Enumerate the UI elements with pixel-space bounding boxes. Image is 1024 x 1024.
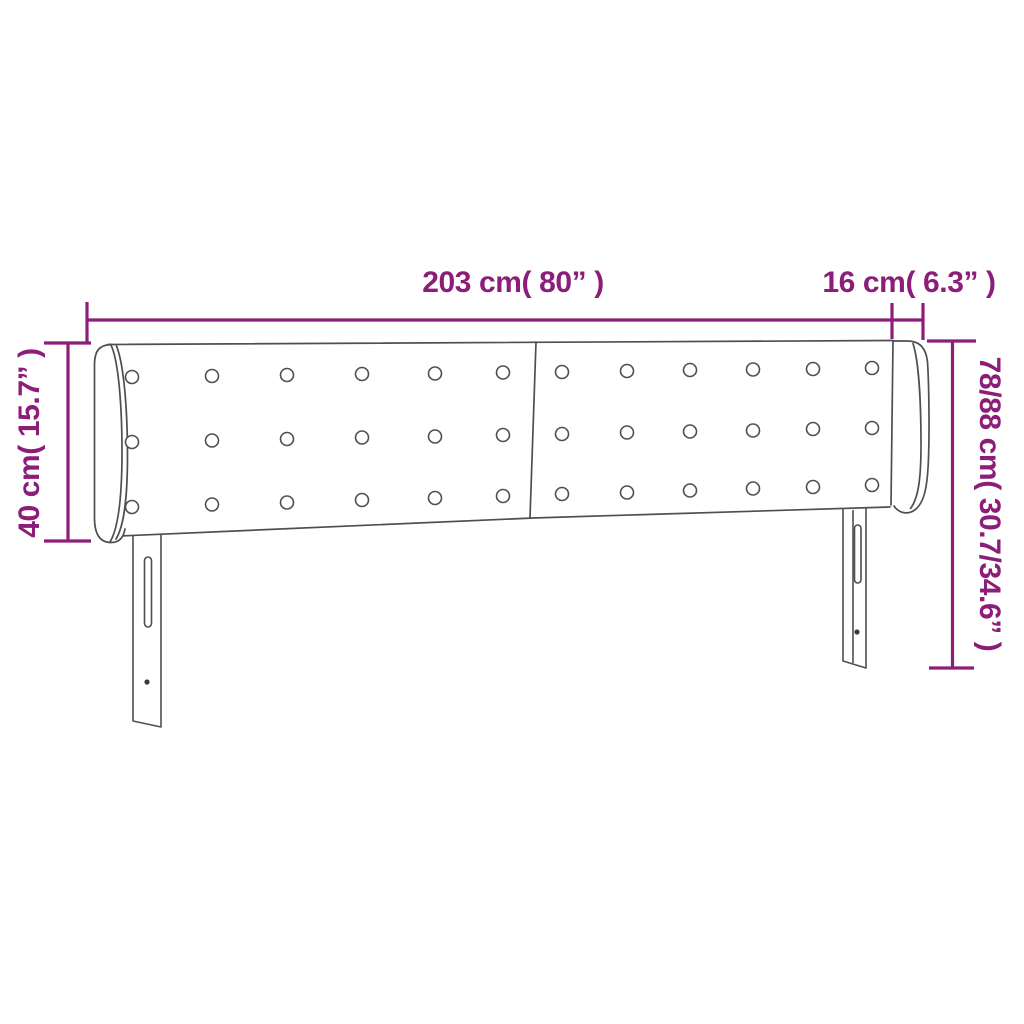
button	[747, 424, 760, 437]
wing-width-dimension-label: 16 cm( 6.3” )	[822, 266, 995, 300]
total-width-dimension-label: 203 cm( 80” )	[422, 266, 604, 300]
button	[356, 431, 369, 444]
left-leg-slot	[145, 557, 152, 627]
button	[356, 494, 369, 507]
button	[126, 501, 139, 514]
button	[621, 486, 634, 499]
diagram-canvas: 203 cm( 80” ) 16 cm( 6.3” ) 40 cm( 15.7”…	[0, 0, 1024, 1024]
button	[497, 366, 510, 379]
button	[281, 369, 294, 382]
button	[684, 484, 697, 497]
button	[866, 422, 879, 435]
button	[356, 368, 369, 381]
button	[684, 425, 697, 438]
button	[556, 488, 569, 501]
button	[621, 426, 634, 439]
wing-height-dimension-label: 40 cm( 15.7” )	[13, 348, 47, 538]
button	[556, 366, 569, 379]
button	[807, 481, 820, 494]
right-leg-slot	[855, 525, 862, 583]
button	[429, 492, 442, 505]
right-wing-outline	[893, 341, 929, 513]
button	[429, 430, 442, 443]
button	[807, 423, 820, 436]
button	[497, 490, 510, 503]
button	[126, 371, 139, 384]
left-leg-screw-hole	[144, 679, 149, 684]
headboard-outline	[95, 341, 930, 543]
button	[206, 370, 219, 383]
button	[281, 433, 294, 446]
button	[556, 428, 569, 441]
button	[866, 362, 879, 375]
button	[807, 363, 820, 376]
right-leg	[843, 506, 866, 668]
button	[866, 479, 879, 492]
button	[621, 365, 634, 378]
left-leg	[133, 532, 161, 727]
button	[206, 498, 219, 511]
button	[747, 482, 760, 495]
button	[684, 364, 697, 377]
right-leg-screw-hole	[854, 629, 859, 634]
headboard-diagram-drawing	[0, 0, 1024, 1024]
button	[126, 436, 139, 449]
button	[206, 434, 219, 447]
button	[281, 496, 294, 509]
total-height-dimension-label: 78/88 cm( 30.7/34.6” )	[972, 357, 1006, 652]
button	[429, 367, 442, 380]
button	[747, 363, 760, 376]
button	[497, 429, 510, 442]
